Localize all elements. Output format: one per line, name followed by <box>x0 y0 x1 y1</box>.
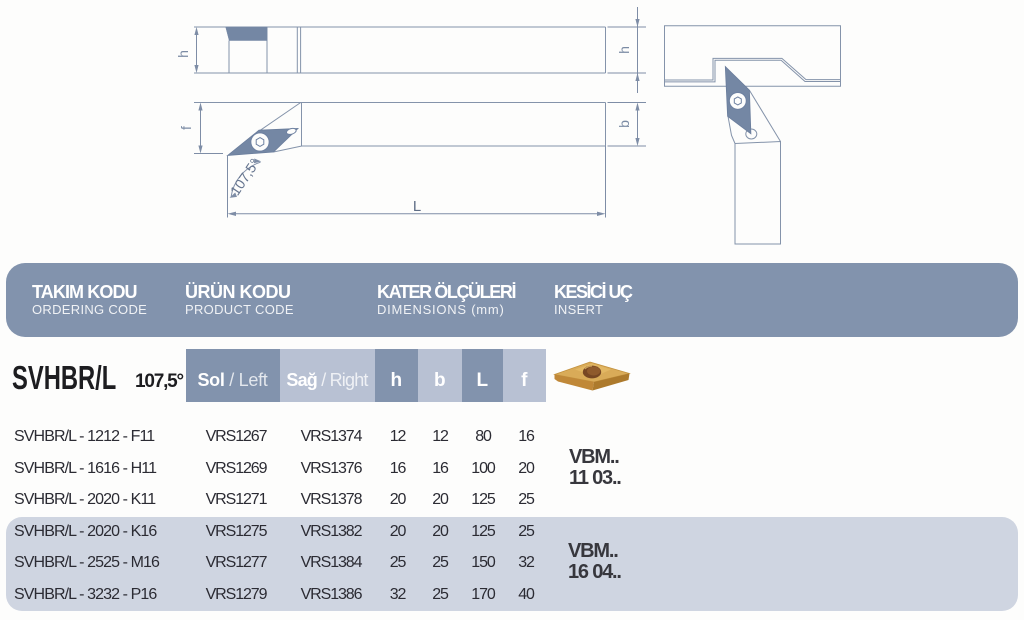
svg-text:h: h <box>175 50 191 58</box>
svg-text:b: b <box>616 120 632 128</box>
svg-text:f: f <box>178 126 194 130</box>
svg-text:L: L <box>413 198 421 215</box>
svg-text:h: h <box>616 46 632 54</box>
svg-text:107,5°: 107,5° <box>227 156 263 199</box>
